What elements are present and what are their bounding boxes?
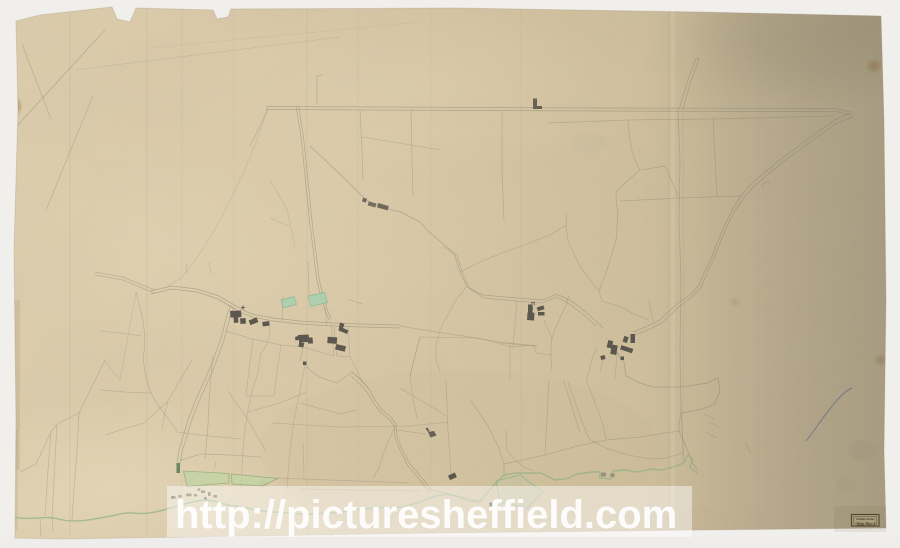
- svg-text:She No.1: She No.1: [857, 521, 876, 527]
- svg-text:Sheffield Libraries: Sheffield Libraries: [856, 517, 875, 521]
- svg-text:http://picturesheffield.com: http://picturesheffield.com: [175, 493, 677, 537]
